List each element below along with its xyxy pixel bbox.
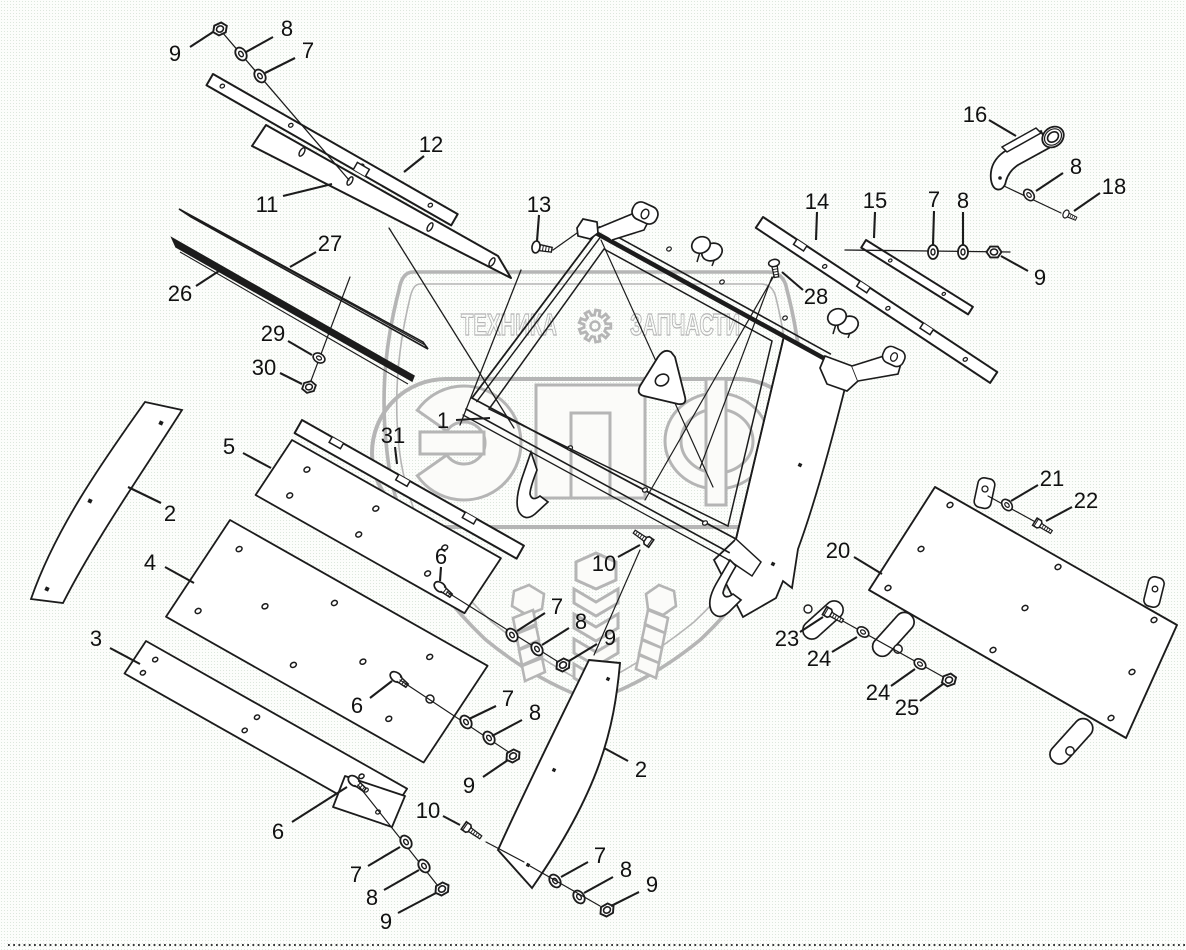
svg-text:9: 9 xyxy=(380,909,392,934)
svg-text:23: 23 xyxy=(775,626,799,651)
svg-text:8: 8 xyxy=(575,609,587,634)
svg-text:29: 29 xyxy=(261,321,285,346)
svg-text:8: 8 xyxy=(1070,154,1082,179)
svg-text:26: 26 xyxy=(168,281,192,306)
svg-text:10: 10 xyxy=(592,551,616,576)
svg-text:9: 9 xyxy=(169,41,181,66)
svg-text:13: 13 xyxy=(527,192,551,217)
svg-text:ЗАПЧАСТИ: ЗАПЧАСТИ xyxy=(630,307,740,342)
svg-text:7: 7 xyxy=(302,38,314,63)
svg-text:7: 7 xyxy=(350,862,362,887)
svg-text:24: 24 xyxy=(866,680,890,705)
svg-text:14: 14 xyxy=(805,189,829,214)
svg-text:7: 7 xyxy=(594,843,606,868)
svg-text:3: 3 xyxy=(90,626,102,651)
svg-text:28: 28 xyxy=(804,284,828,309)
svg-text:12: 12 xyxy=(419,132,443,157)
svg-text:21: 21 xyxy=(1040,466,1064,491)
svg-text:20: 20 xyxy=(826,538,850,563)
svg-text:6: 6 xyxy=(435,544,447,569)
svg-text:9: 9 xyxy=(604,625,616,650)
svg-text:8: 8 xyxy=(529,700,541,725)
svg-text:8: 8 xyxy=(957,188,969,213)
svg-text:9: 9 xyxy=(646,872,658,897)
svg-text:7: 7 xyxy=(928,187,940,212)
svg-text:18: 18 xyxy=(1102,174,1126,199)
svg-text:30: 30 xyxy=(252,355,276,380)
svg-text:24: 24 xyxy=(807,646,831,671)
svg-text:8: 8 xyxy=(620,857,632,882)
svg-text:6: 6 xyxy=(272,819,284,844)
svg-text:31: 31 xyxy=(381,423,405,448)
svg-text:25: 25 xyxy=(895,695,919,720)
svg-text:15: 15 xyxy=(863,188,887,213)
svg-text:5: 5 xyxy=(223,434,235,459)
svg-text:ТЕХНИКА: ТЕХНИКА xyxy=(461,307,557,342)
svg-text:7: 7 xyxy=(502,686,514,711)
svg-text:22: 22 xyxy=(1074,488,1098,513)
svg-text:1: 1 xyxy=(437,408,449,433)
svg-text:9: 9 xyxy=(463,773,475,798)
svg-text:7: 7 xyxy=(551,594,563,619)
svg-text:10: 10 xyxy=(416,798,440,823)
svg-text:2: 2 xyxy=(635,757,647,782)
svg-text:11: 11 xyxy=(256,192,279,217)
svg-text:6: 6 xyxy=(351,693,363,718)
svg-text:8: 8 xyxy=(281,16,293,41)
svg-text:4: 4 xyxy=(144,550,156,575)
svg-text:9: 9 xyxy=(1034,265,1046,290)
svg-text:8: 8 xyxy=(366,885,378,910)
svg-text:27: 27 xyxy=(318,231,342,256)
svg-text:16: 16 xyxy=(963,102,987,127)
svg-text:2: 2 xyxy=(164,501,176,526)
